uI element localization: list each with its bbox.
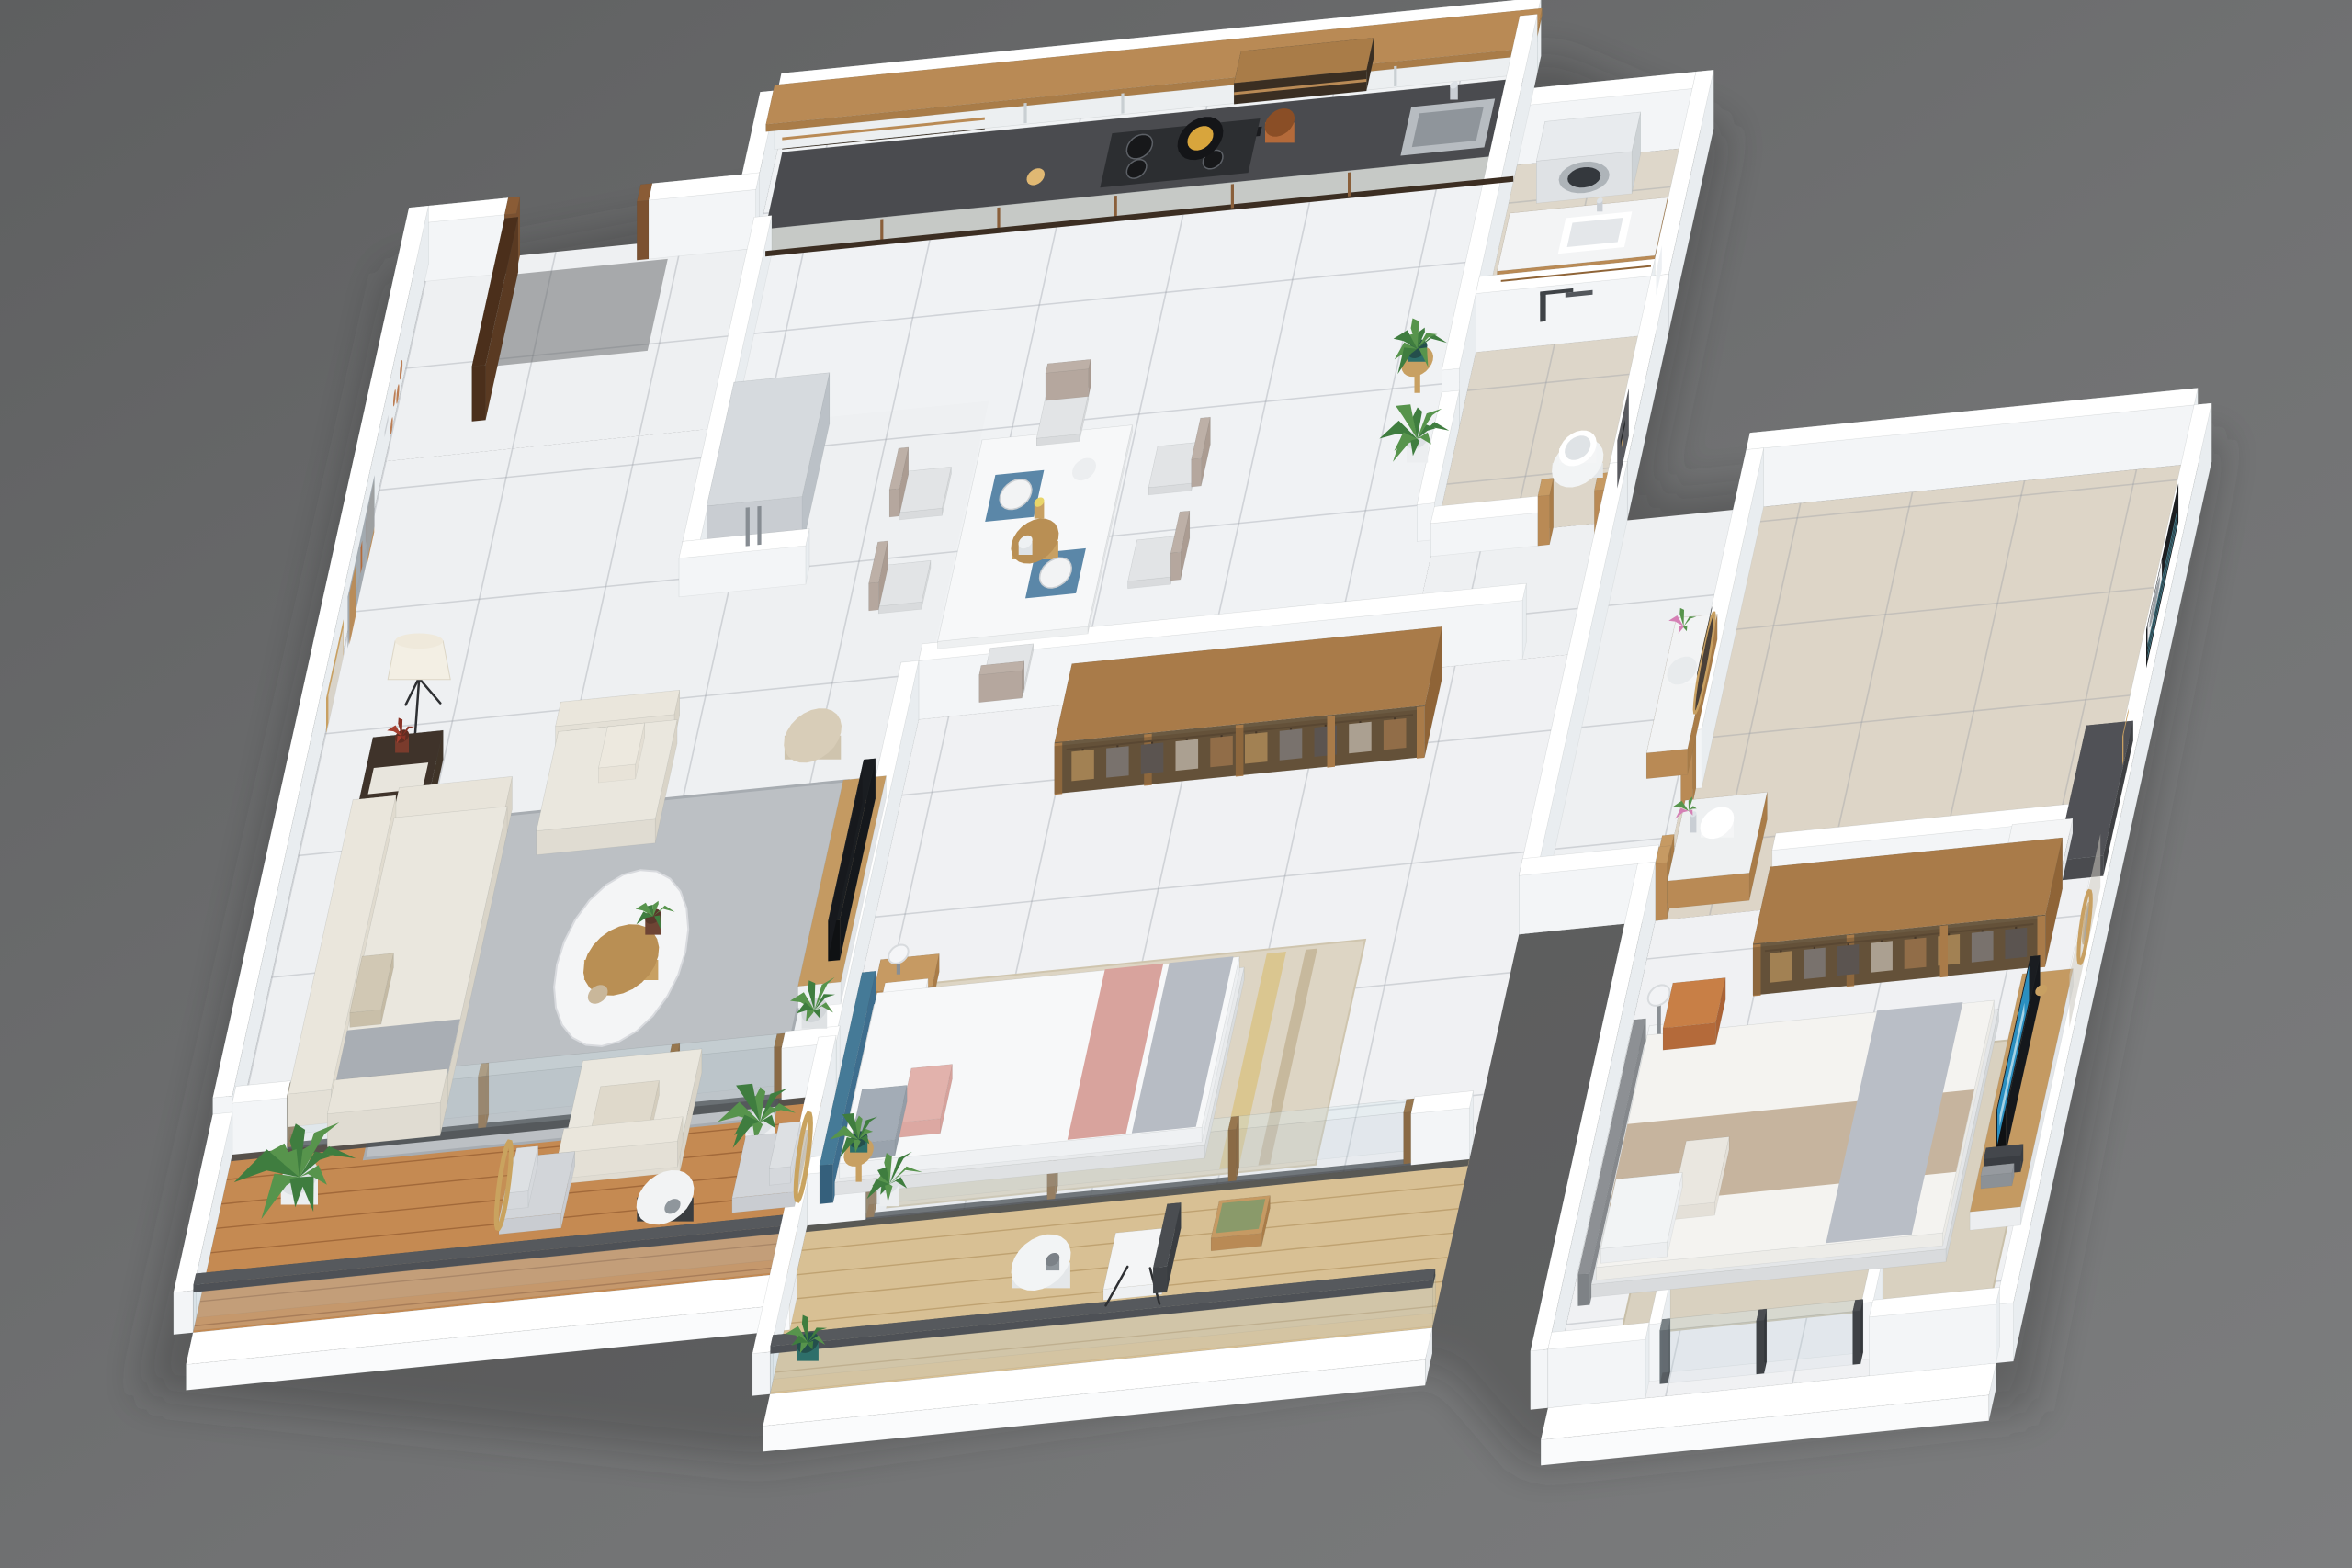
dining-chair-north-back-s bbox=[1046, 369, 1089, 401]
balcony-chair-left-pillow-s bbox=[507, 1191, 528, 1210]
bedroom2-headboard-s bbox=[1578, 1274, 1590, 1306]
upper-cabinet-seam-1 bbox=[1023, 103, 1026, 123]
dining-chair-south-back-s bbox=[979, 671, 1023, 703]
floorplan-stage bbox=[0, 0, 2352, 1568]
fridge-handle-left bbox=[746, 507, 750, 546]
floor-lamp-shade-top bbox=[395, 633, 443, 649]
master-wardrobe-frame-5 bbox=[1417, 706, 1425, 759]
niche-frame-post-2-s bbox=[1757, 1320, 1764, 1374]
counter-copper-trim-5 bbox=[1348, 173, 1351, 197]
entry-door-leaf-open-s bbox=[472, 365, 486, 422]
master-wardrobe-frame-4 bbox=[1328, 716, 1336, 768]
ensuite-faucet-side bbox=[1690, 814, 1696, 832]
dining-chair-west-1-back-s bbox=[889, 489, 899, 517]
living-door-stub-w-s bbox=[232, 1098, 287, 1155]
counter-copper-trim-4 bbox=[1231, 184, 1234, 208]
bedroom2-niche-stub-w-s bbox=[1649, 1324, 1661, 1382]
master-balcony-bench-cushion bbox=[1216, 1199, 1265, 1233]
apartment-3d-floorplan-render bbox=[0, 0, 2352, 1568]
balcony-divider-wall-s bbox=[752, 1352, 770, 1396]
bedroom2-wardrobe-frame-3 bbox=[1940, 925, 1949, 977]
dining-chair-west-2-back-s bbox=[869, 582, 879, 611]
nook-vanity-cabinet-s bbox=[1646, 749, 1688, 779]
dining-chair-east-2-back-s bbox=[1170, 552, 1181, 581]
master-balcony-chair-back-s bbox=[1153, 1267, 1167, 1294]
foyer-north-wall-b-s bbox=[649, 189, 756, 259]
master-door-post-3-s bbox=[1228, 1129, 1237, 1181]
dining-chair-east-1-back-s bbox=[1192, 458, 1202, 487]
balcony-chair-right-pillow-s bbox=[769, 1167, 790, 1185]
upper-cabinet-seam-2 bbox=[1121, 93, 1124, 113]
bath-entry-wood-post-a-s bbox=[1538, 495, 1550, 546]
bedroom2-copper-shelf-t bbox=[1663, 978, 1725, 1029]
fridge-handle-right bbox=[757, 506, 761, 545]
entry-door-frame-e-s bbox=[637, 200, 649, 260]
bedroom2-door-post-s bbox=[1656, 863, 1668, 920]
master-door-post-4-s bbox=[1404, 1111, 1412, 1164]
sofa-back-s bbox=[288, 1089, 332, 1127]
living-balcony-west-wall-s bbox=[174, 1291, 193, 1335]
ensuite-gold-shower-pipe bbox=[2122, 731, 2123, 766]
shower-pipe bbox=[1540, 292, 1545, 322]
niche-frame-post-3-s bbox=[1853, 1311, 1861, 1365]
bedroom2-south-wall-a-s bbox=[1548, 1339, 1645, 1408]
master-door-stub-e-s bbox=[1411, 1108, 1470, 1165]
upper-cabinet-seam-3 bbox=[1394, 66, 1396, 86]
bedroom2-west-outer-wall-s bbox=[1531, 1349, 1548, 1410]
master-headboard-s bbox=[820, 1164, 833, 1204]
